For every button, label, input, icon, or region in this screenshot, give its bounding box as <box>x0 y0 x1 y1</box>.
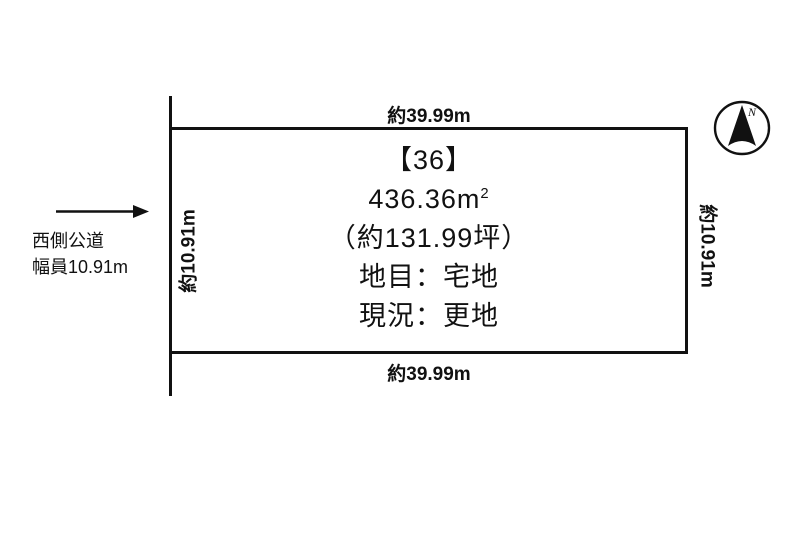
dimension-label-right: 約10.91m <box>696 204 723 287</box>
plot-info-block: 【36】 436.36m2 （約131.99坪） 地目：宅地 現況：更地 <box>170 141 688 336</box>
road-name: 西側公道 <box>32 228 128 254</box>
road-width: 幅員10.91m <box>32 254 128 280</box>
dimension-label-top: 約39.99m <box>170 101 688 128</box>
compass-north-icon: N <box>712 99 772 157</box>
dimension-label-bottom: 約39.99m <box>170 359 688 386</box>
land-plot-diagram: 約39.99m 約39.99m 約10.91m 約10.91m 【36】 436… <box>0 0 800 556</box>
road-direction-arrow-icon <box>54 203 150 220</box>
plot-area-tsubo: （約131.99坪） <box>170 219 688 258</box>
road-note: 西側公道 幅員10.91m <box>32 228 128 280</box>
compass-north-label: N <box>747 105 757 119</box>
plot-area-unit: m <box>457 184 481 214</box>
plot-number: 【36】 <box>170 141 688 180</box>
plot-area-value: 436.36 <box>368 184 457 214</box>
plot-area-sqm: 436.36m2 <box>170 180 688 219</box>
plot-current-status: 現況：更地 <box>170 297 688 336</box>
plot-land-category: 地目：宅地 <box>170 258 688 297</box>
plot-area-superscript: 2 <box>480 186 489 202</box>
